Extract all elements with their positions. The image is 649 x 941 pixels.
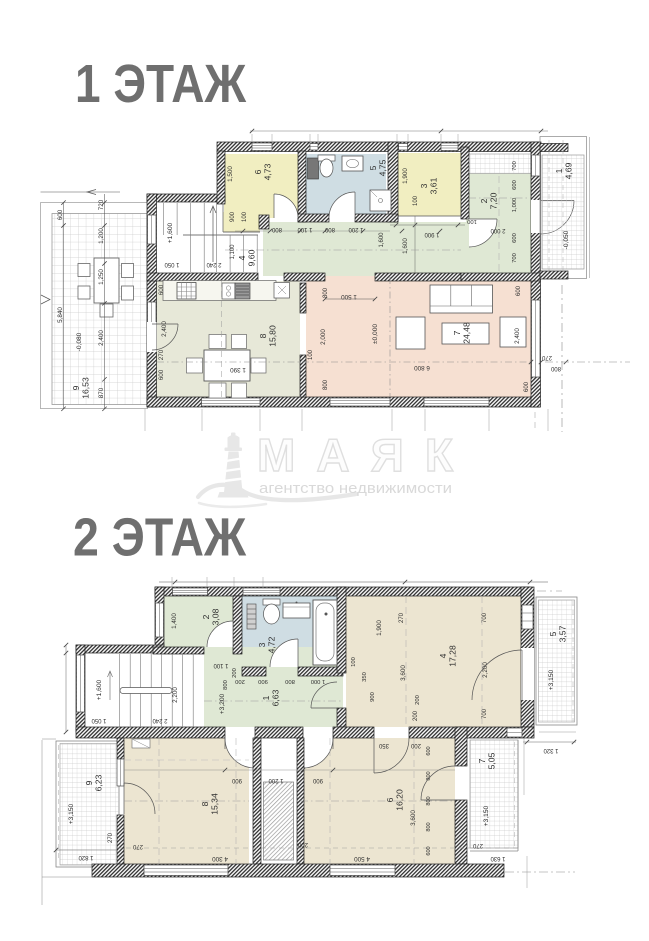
svg-text:2 240: 2 240 — [152, 717, 168, 723]
svg-text:800: 800 — [426, 771, 432, 780]
svg-text:4 500: 4 500 — [354, 855, 370, 862]
svg-text:6: 6 — [253, 169, 263, 174]
svg-text:1,200: 1,200 — [98, 228, 105, 244]
svg-text:-0,080: -0,080 — [76, 332, 83, 351]
svg-text:1,000: 1,000 — [512, 198, 518, 213]
svg-text:агентство недвижимости: агентство недвижимости — [259, 481, 452, 497]
svg-text:8: 8 — [258, 333, 268, 338]
svg-text:16,53: 16,53 — [81, 377, 91, 399]
svg-text:8: 8 — [200, 801, 210, 806]
svg-text:6 800: 6 800 — [414, 364, 430, 371]
svg-text:200: 200 — [415, 695, 421, 705]
svg-text:+3,200: +3,200 — [219, 693, 226, 714]
svg-text:600: 600 — [512, 233, 518, 243]
svg-text:1,100: 1,100 — [230, 244, 236, 260]
svg-text:1 ЭТАЖ: 1 ЭТАЖ — [75, 54, 247, 114]
svg-text:5,840: 5,840 — [57, 307, 64, 323]
svg-text:100: 100 — [351, 657, 357, 667]
svg-text:200: 200 — [410, 742, 421, 748]
svg-text:100: 100 — [413, 195, 419, 206]
svg-text:+3,150: +3,150 — [68, 803, 75, 824]
svg-text:3,57: 3,57 — [558, 625, 568, 642]
svg-text:800: 800 — [271, 226, 282, 232]
svg-text:4,69: 4,69 — [564, 162, 574, 179]
svg-text:2: 2 — [479, 198, 489, 203]
svg-text:270: 270 — [541, 354, 552, 360]
svg-text:900: 900 — [230, 211, 236, 222]
svg-text:+1,600: +1,600 — [167, 222, 174, 243]
svg-text:600: 600 — [512, 180, 518, 190]
svg-text:24,48: 24,48 — [462, 322, 472, 344]
svg-text:1 050: 1 050 — [164, 261, 180, 267]
svg-text:+1,600: +1,600 — [96, 679, 103, 700]
svg-text:1 320: 1 320 — [543, 747, 559, 753]
svg-text:1,250: 1,250 — [98, 269, 105, 285]
svg-text:3: 3 — [419, 183, 429, 188]
svg-text:1 390: 1 390 — [230, 366, 246, 373]
svg-text:9: 9 — [84, 780, 94, 785]
svg-text:1: 1 — [554, 168, 564, 173]
svg-text:200: 200 — [413, 710, 419, 721]
svg-text:1 100: 1 100 — [297, 226, 313, 232]
svg-text:270: 270 — [158, 349, 165, 360]
svg-text:200: 200 — [232, 668, 238, 678]
svg-text:270: 270 — [132, 843, 143, 849]
svg-text:2 240: 2 240 — [206, 261, 222, 267]
svg-text:700: 700 — [482, 708, 488, 719]
svg-text:4 300: 4 300 — [212, 855, 228, 862]
svg-text:1 200: 1 200 — [268, 777, 284, 783]
svg-text:1: 1 — [261, 695, 271, 700]
svg-text:1 900: 1 900 — [424, 231, 440, 237]
svg-text:1 200: 1 200 — [348, 226, 364, 232]
svg-text:1 630: 1 630 — [490, 855, 506, 861]
svg-text:15,34: 15,34 — [210, 793, 220, 815]
svg-text:4,72: 4,72 — [267, 636, 277, 653]
svg-text:3,08: 3,08 — [211, 608, 221, 625]
svg-text:16,20: 16,20 — [395, 789, 405, 811]
svg-text:100: 100 — [467, 218, 477, 224]
svg-text:7: 7 — [477, 758, 487, 763]
svg-text:±0,000: ±0,000 — [372, 324, 379, 344]
svg-text:5: 5 — [548, 631, 558, 636]
svg-text:700: 700 — [482, 612, 488, 623]
svg-text:800: 800 — [223, 680, 229, 690]
svg-text:+3,150: +3,150 — [483, 805, 490, 826]
svg-text:4,75: 4,75 — [378, 159, 388, 176]
svg-text:600: 600 — [524, 381, 530, 392]
svg-text:2,200: 2,200 — [482, 662, 489, 678]
svg-text:600: 600 — [426, 846, 432, 855]
svg-text:2,400: 2,400 — [161, 321, 168, 337]
svg-text:1,600: 1,600 — [379, 232, 385, 248]
svg-text:1,900: 1,900 — [376, 620, 383, 636]
svg-text:1 820: 1 820 — [78, 854, 94, 860]
svg-text:4: 4 — [438, 653, 448, 658]
svg-text:900: 900 — [231, 777, 242, 783]
svg-text:870: 870 — [98, 387, 105, 398]
svg-text:1,900: 1,900 — [402, 168, 409, 184]
svg-text:100: 100 — [308, 349, 314, 360]
svg-text:3,600: 3,600 — [410, 810, 417, 826]
svg-text:2 000: 2 000 — [490, 227, 506, 233]
svg-text:720: 720 — [98, 199, 105, 210]
svg-text:9: 9 — [71, 385, 81, 390]
svg-text:800: 800 — [426, 796, 432, 805]
svg-text:-0,050: -0,050 — [563, 230, 570, 249]
svg-text:4,73: 4,73 — [263, 163, 273, 180]
svg-text:1,400: 1,400 — [171, 613, 178, 629]
svg-text:800: 800 — [324, 226, 335, 232]
svg-text:6,63: 6,63 — [271, 689, 281, 706]
svg-text:3,61: 3,61 — [429, 177, 439, 194]
svg-text:270: 270 — [108, 832, 114, 843]
svg-text:270: 270 — [472, 842, 483, 848]
svg-text:2,000: 2,000 — [320, 329, 327, 345]
svg-text:600: 600 — [516, 285, 522, 296]
svg-text:1 000: 1 000 — [311, 678, 326, 684]
svg-text:4: 4 — [237, 255, 247, 260]
svg-text:1 050: 1 050 — [91, 717, 107, 723]
svg-text:700: 700 — [512, 253, 518, 263]
svg-text:800: 800 — [323, 379, 329, 390]
svg-text:15,80: 15,80 — [268, 325, 278, 347]
svg-text:600: 600 — [158, 369, 165, 380]
svg-text:800: 800 — [426, 822, 432, 831]
svg-text:6,23: 6,23 — [94, 774, 104, 791]
svg-text:900: 900 — [312, 777, 323, 783]
svg-text:2,200: 2,200 — [172, 687, 179, 703]
svg-text:5,05: 5,05 — [487, 752, 497, 769]
svg-text:900: 900 — [370, 692, 376, 702]
svg-text:1 100: 1 100 — [213, 662, 229, 668]
svg-text:700: 700 — [512, 161, 518, 171]
svg-text:2: 2 — [201, 614, 211, 619]
svg-text:100: 100 — [242, 211, 248, 222]
svg-text:9,60: 9,60 — [247, 249, 257, 266]
svg-text:350: 350 — [378, 742, 389, 748]
svg-text:+3,150: +3,150 — [548, 669, 555, 690]
svg-text:2,400: 2,400 — [98, 330, 105, 346]
svg-text:200: 200 — [297, 841, 308, 847]
svg-text:7: 7 — [452, 330, 462, 335]
svg-text:350: 350 — [362, 672, 368, 682]
svg-text:200: 200 — [235, 678, 245, 684]
svg-text:1,500: 1,500 — [227, 166, 234, 182]
svg-text:600: 600 — [158, 284, 165, 295]
svg-text:600: 600 — [426, 746, 432, 755]
svg-text:3: 3 — [257, 642, 267, 647]
svg-text:6: 6 — [385, 797, 395, 802]
svg-text:900: 900 — [258, 678, 268, 684]
svg-text:1,600: 1,600 — [402, 238, 409, 254]
svg-text:800: 800 — [323, 287, 329, 298]
svg-text:17,28: 17,28 — [448, 645, 458, 667]
svg-text:2,400: 2,400 — [514, 328, 521, 344]
svg-text:800: 800 — [550, 365, 561, 371]
svg-text:600: 600 — [57, 209, 64, 220]
svg-text:5: 5 — [368, 165, 378, 170]
svg-text:7,20: 7,20 — [489, 192, 499, 209]
svg-text:2 ЭТАЖ: 2 ЭТАЖ — [73, 508, 247, 568]
svg-text:800: 800 — [285, 678, 295, 684]
svg-text:270: 270 — [399, 612, 405, 623]
